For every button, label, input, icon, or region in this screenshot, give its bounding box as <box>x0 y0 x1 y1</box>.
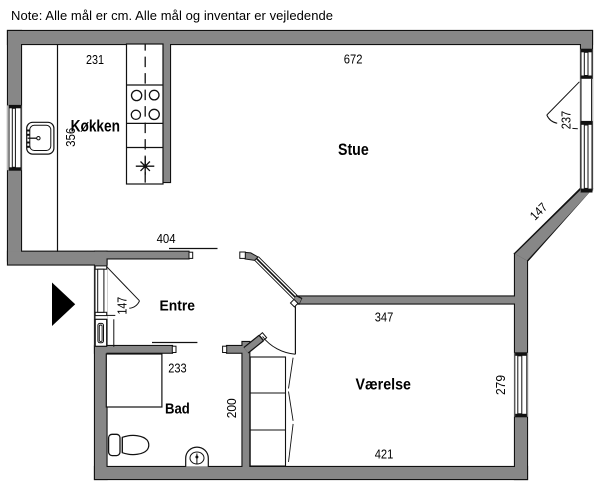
svg-text:Entre: Entre <box>160 297 196 314</box>
svg-text:347: 347 <box>375 310 394 324</box>
svg-text:279: 279 <box>494 375 508 395</box>
svg-text:Stue: Stue <box>338 140 369 159</box>
svg-text:231: 231 <box>86 53 104 67</box>
svg-text:Bad: Bad <box>165 401 190 418</box>
svg-text:421: 421 <box>375 448 394 462</box>
svg-text:404: 404 <box>157 232 176 246</box>
svg-text:356: 356 <box>64 128 78 147</box>
svg-text:233: 233 <box>168 361 186 375</box>
svg-text:Note: Alle mål er cm. Alle mål: Note: Alle mål er cm. Alle mål og invent… <box>11 8 333 23</box>
svg-text:237: 237 <box>559 111 573 130</box>
svg-text:672: 672 <box>344 52 363 66</box>
svg-text:Værelse: Værelse <box>356 376 411 393</box>
svg-text:200: 200 <box>225 398 239 418</box>
svg-text:147: 147 <box>116 297 130 315</box>
